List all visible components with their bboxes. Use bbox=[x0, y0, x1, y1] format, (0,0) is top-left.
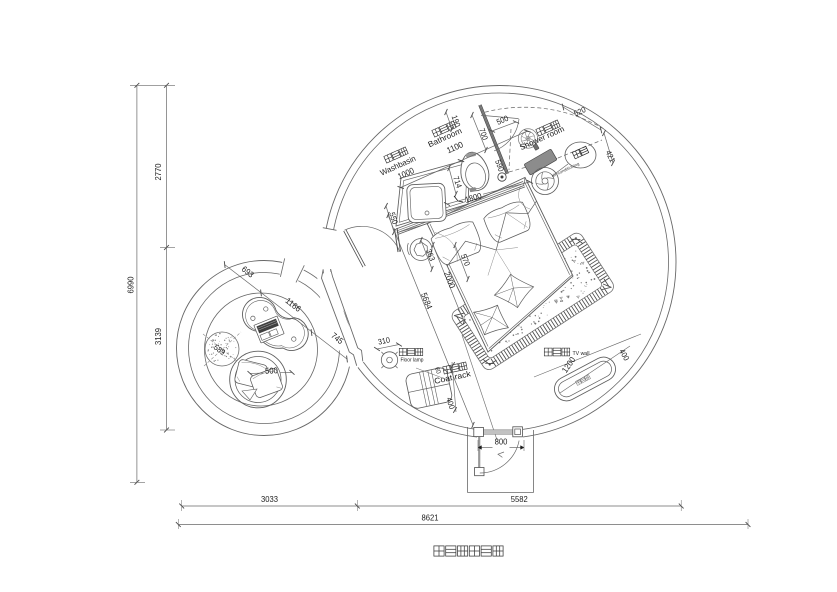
svg-text:8621: 8621 bbox=[422, 513, 439, 523]
svg-text:421: 421 bbox=[604, 149, 617, 164]
svg-text:TV wall: TV wall bbox=[573, 351, 590, 357]
svg-text:1166: 1166 bbox=[284, 295, 304, 314]
svg-text:5582: 5582 bbox=[511, 494, 528, 504]
svg-text:air-conditioning: air-conditioning bbox=[551, 161, 581, 179]
svg-text:1100: 1100 bbox=[445, 139, 465, 155]
svg-text:800: 800 bbox=[495, 437, 508, 447]
svg-text:5684: 5684 bbox=[419, 291, 435, 311]
svg-text:500: 500 bbox=[265, 365, 278, 375]
svg-text:3139: 3139 bbox=[153, 328, 163, 345]
svg-text:6990: 6990 bbox=[126, 276, 136, 293]
svg-text:310: 310 bbox=[377, 335, 391, 346]
svg-text:2770: 2770 bbox=[153, 163, 163, 180]
svg-text:693: 693 bbox=[240, 264, 256, 280]
svg-text:3033: 3033 bbox=[261, 494, 278, 504]
svg-text:400: 400 bbox=[617, 347, 631, 362]
svg-text:Floor lamp: Floor lamp bbox=[401, 358, 424, 364]
